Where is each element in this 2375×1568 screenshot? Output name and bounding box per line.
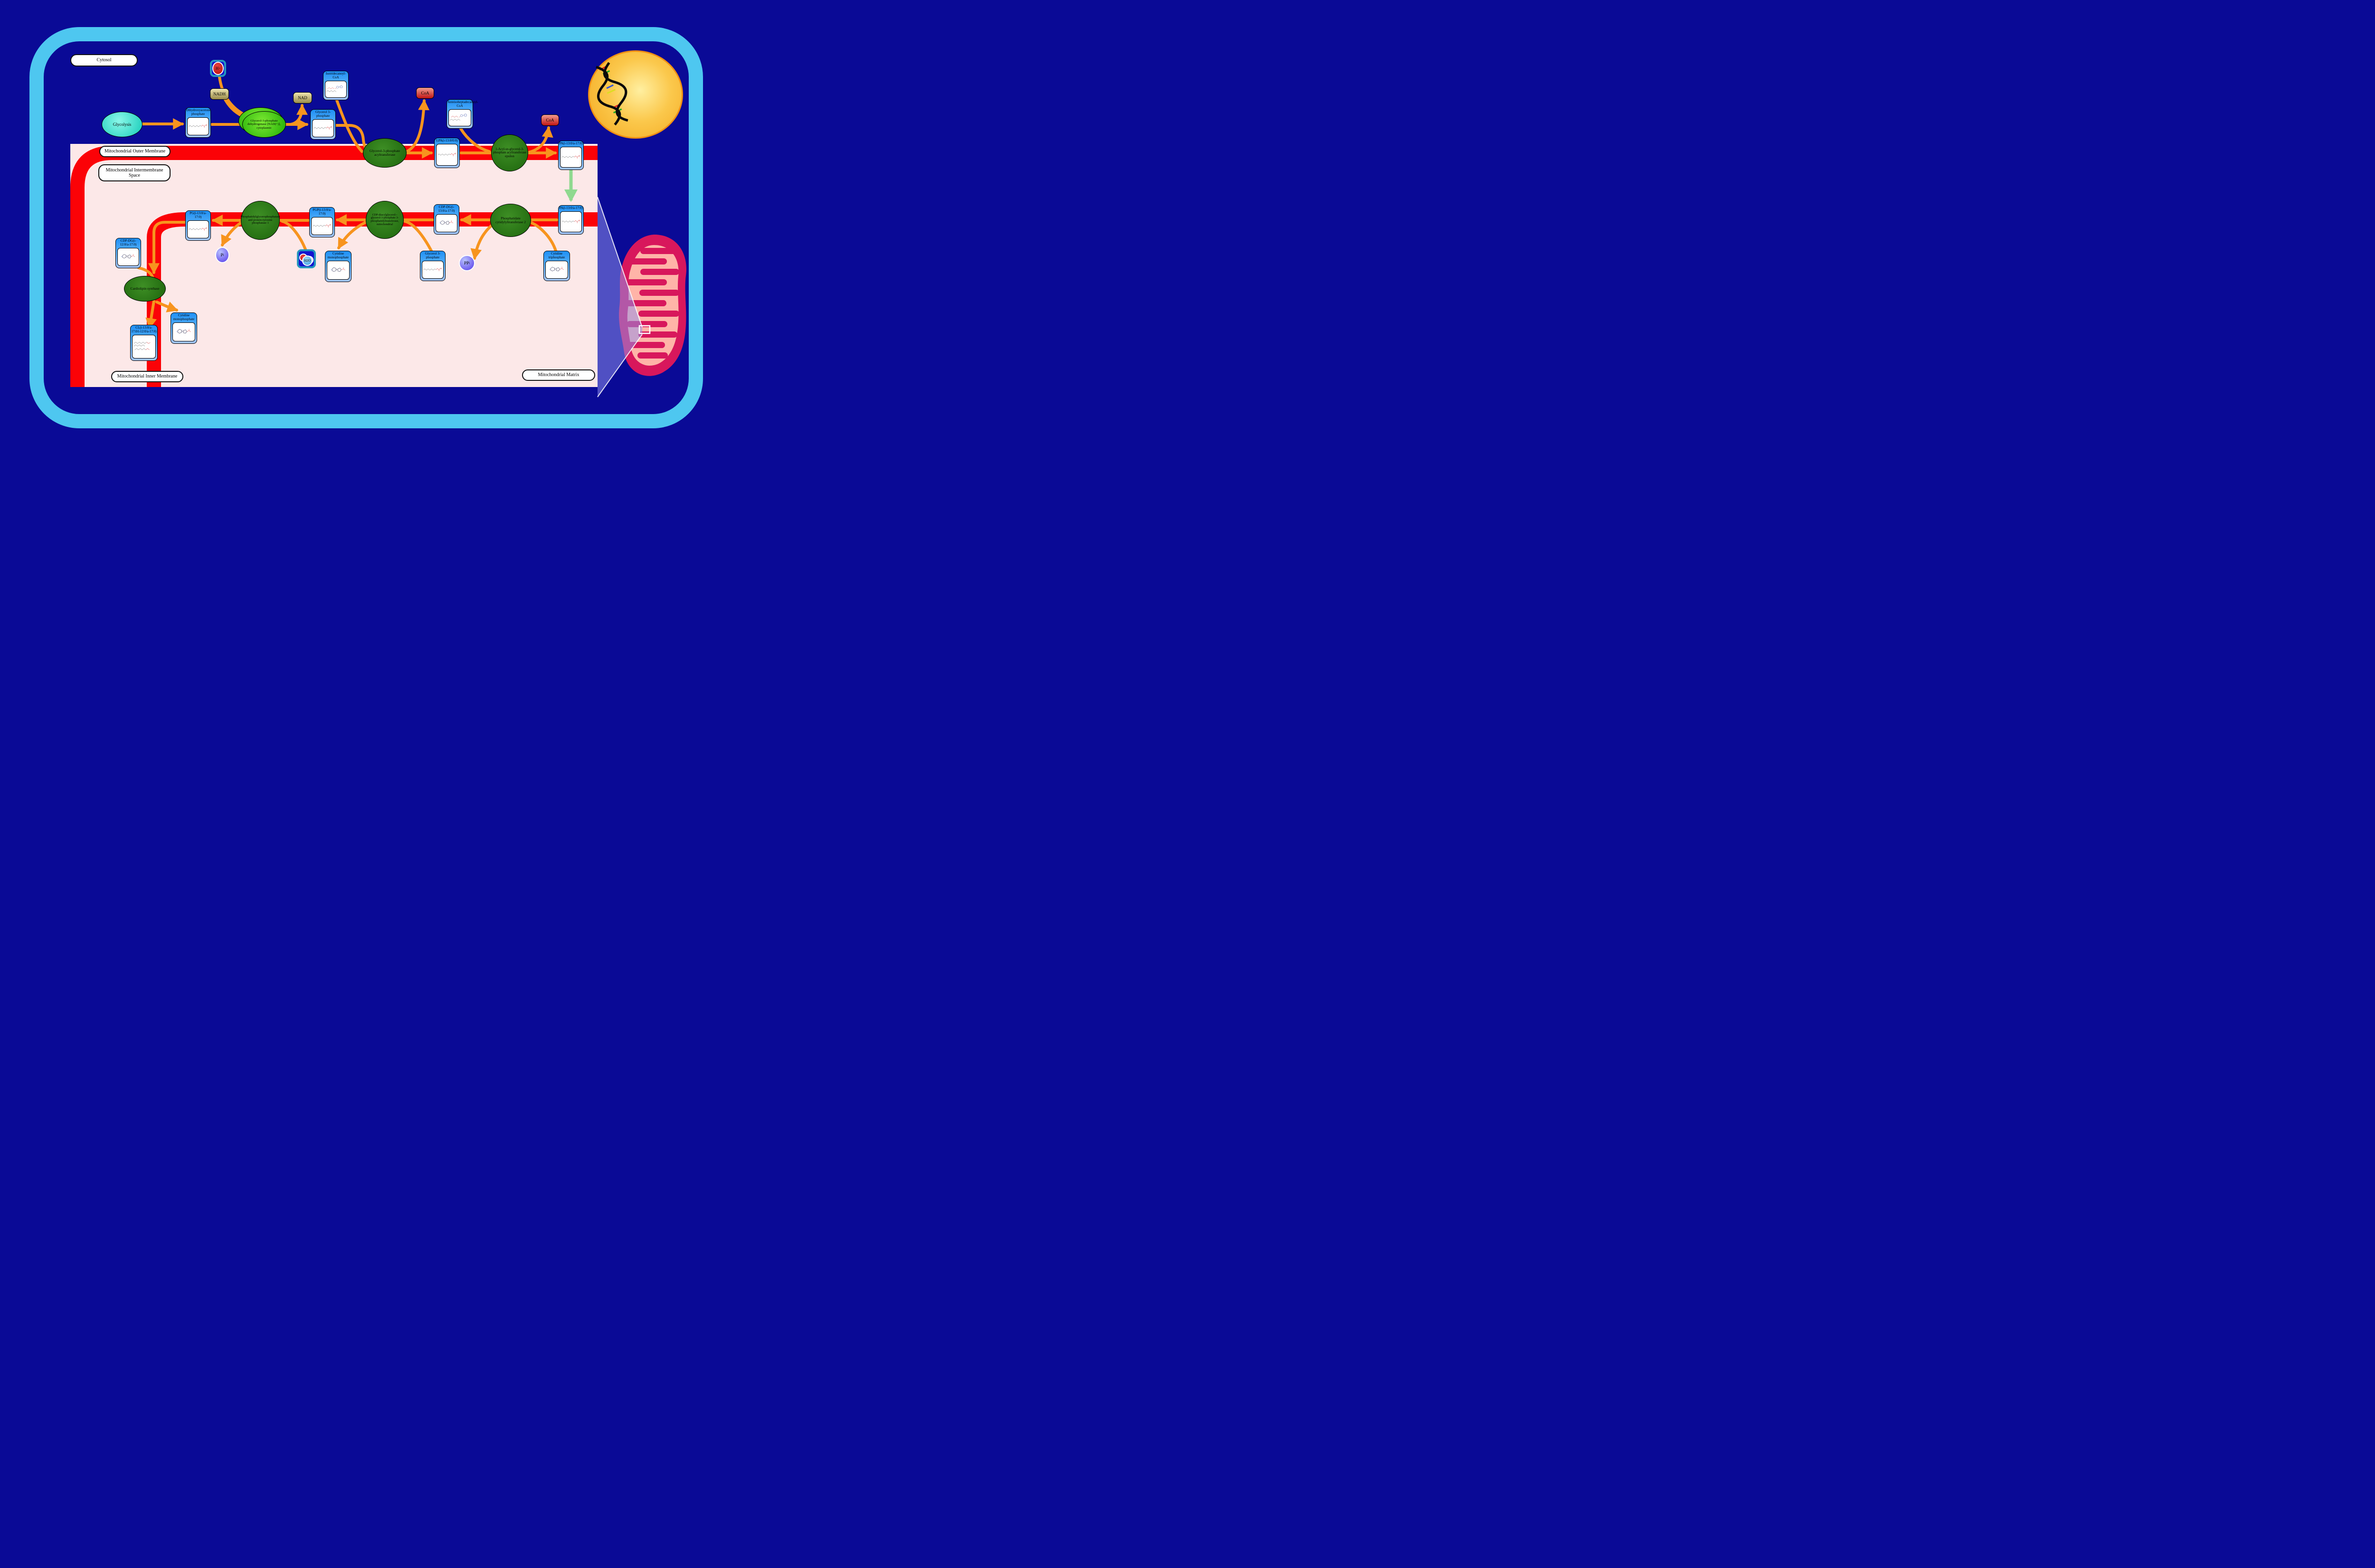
structure-icon bbox=[133, 340, 155, 354]
metabolite-name: Anteisoheptadecanoyl-CoA bbox=[447, 100, 473, 109]
structure-icon bbox=[422, 264, 443, 275]
region-label-intermembrane-space: Mitochondrial Intermembrane Space bbox=[98, 164, 171, 181]
region-label-text: Cytosol bbox=[96, 57, 111, 63]
enzyme-g3p-dehydrogenase[interactable]: Glycerol-3-phosphate dehydrogenase [NAD(… bbox=[242, 111, 286, 138]
enzyme-cdp-dg-g3p-phosphatidyltransferase[interactable]: CDP-diacylglycerol--glycerol-3-phosphate… bbox=[366, 201, 404, 239]
cofactor-label: CoA bbox=[421, 91, 429, 95]
metabolite-name: Cytidine monophosphate bbox=[325, 251, 351, 260]
cofactor-label-sup: + bbox=[218, 66, 220, 70]
hydrogen-atom-icon: H2O bbox=[302, 255, 313, 266]
metabolite-name: LPA(i-13:0/0:0) bbox=[435, 138, 459, 143]
h2o-molecule: H2O bbox=[299, 252, 313, 266]
metabolite-name: CDP-DG(i-13:0/a-17:0) bbox=[434, 205, 459, 214]
enzyme-g3p-acyltransferase[interactable]: Glycerol-3-phosphate acyltransferase bbox=[363, 138, 407, 168]
metabolite-isotridecanoyl-coa[interactable]: Isotridecanoyl-CoA bbox=[323, 71, 349, 100]
cofactor-pi[interactable]: Pi bbox=[215, 247, 229, 263]
metabolite-lpa[interactable]: LPA(i-13:0/0:0) bbox=[434, 138, 460, 168]
pathway-canvas: Cytosol Mitochondrial Outer Membrane Mit… bbox=[0, 0, 745, 455]
inner-membrane-band bbox=[154, 219, 598, 387]
enzyme-name: Cardiolipin synthase bbox=[131, 287, 160, 291]
metabolite-name: Isotridecanoyl-CoA bbox=[323, 71, 348, 80]
structure-icon bbox=[173, 326, 195, 338]
enzyme-cardiolipin-synthase[interactable]: Cardiolipin synthase bbox=[124, 276, 166, 302]
enzyme-name: Glycerol-3-phosphate acyltransferase bbox=[365, 149, 405, 157]
structure-icon bbox=[325, 84, 346, 95]
metabolite-name: PA(i-13:0/a-17:0) bbox=[559, 206, 583, 211]
structure-icon bbox=[437, 150, 457, 160]
metabolite-pa-outer[interactable]: PA(i-13:0/a-17:0) bbox=[558, 141, 584, 170]
region-label-matrix: Mitochondrial Matrix bbox=[522, 369, 595, 381]
region-label-text: Mitochondrial Matrix bbox=[538, 372, 579, 378]
region-label-text: Mitochondrial Inner Membrane bbox=[117, 374, 178, 379]
structure-icon bbox=[188, 224, 209, 235]
enzyme-pgp-phosphatase[interactable]: Phosphatidylglycerophosphatase and prote… bbox=[241, 201, 280, 240]
metabolite-cmp-middle[interactable]: Cytidine monophosphate bbox=[325, 251, 351, 282]
pathway-node-glycolysis[interactable]: Glycolysis bbox=[102, 112, 142, 137]
cofactor-label: CoA bbox=[546, 118, 554, 123]
metabolite-name: Cytidine monophosphate bbox=[171, 313, 197, 322]
metabolite-name: Cytidine triphosphate bbox=[544, 251, 570, 260]
enzyme-name: Phosphatidylglycerophosphatase and prote… bbox=[241, 216, 280, 226]
structure-icon bbox=[327, 264, 349, 276]
region-label-outer-membrane: Mitochondrial Outer Membrane bbox=[99, 146, 171, 157]
metabolite-name: PG(i-13:0/a-17:0) bbox=[186, 211, 210, 220]
enzyme-name: Phosphatidate cytidylyltransferase 2 bbox=[492, 217, 529, 224]
enzyme-agpat-epsilon[interactable]: 1-Acyl-sn-glycerol-3-phosphate acyltrans… bbox=[491, 134, 528, 171]
cofactor-label-sub: i bbox=[469, 261, 470, 265]
h-plus-core: H+ bbox=[212, 62, 224, 75]
structure-icon bbox=[312, 221, 332, 231]
metabolite-cdp-dg-12[interactable]: CDP-DG(i-12:0/a-17:0) bbox=[115, 238, 141, 268]
structure-icon bbox=[436, 218, 457, 228]
metabolite-cl[interactable]: CL(i-13:0/a-17:0/i-12:0/a-17:0) bbox=[130, 325, 158, 361]
region-label-cytosol: Cytosol bbox=[70, 54, 138, 66]
enzyme-phosphatidate-cytidylyltransferase[interactable]: Phosphatidate cytidylyltransferase 2 bbox=[490, 204, 531, 237]
cofactor-label: NADH bbox=[213, 92, 226, 96]
region-label-text: Mitochondrial Outer Membrane bbox=[104, 149, 165, 154]
structure-icon bbox=[449, 112, 471, 123]
enzyme-name: Glycerol-3-phosphate dehydrogenase [NAD(… bbox=[244, 119, 284, 130]
structure-icon bbox=[560, 217, 581, 227]
region-label-inner-membrane: Mitochondrial Inner Membrane bbox=[111, 371, 183, 382]
structure-icon bbox=[188, 121, 209, 132]
h-plus-icon[interactable]: H+ bbox=[210, 60, 226, 77]
metabolite-name: PGP(i-13:0/a-17:0) bbox=[310, 208, 334, 217]
region-label-text: Mitochondrial Intermembrane Space bbox=[101, 168, 168, 179]
metabolite-cmp-left[interactable]: Cytidine monophosphate bbox=[171, 312, 197, 344]
structure-icon bbox=[118, 252, 139, 262]
metabolite-pgp[interactable]: PGP(i-13:0/a-17:0) bbox=[309, 207, 335, 237]
cofactor-ppi[interactable]: PPi bbox=[459, 255, 475, 271]
metabolite-name: CL(i-13:0/a-17:0/i-12:0/a-17:0) bbox=[131, 325, 157, 334]
metabolite-name: CDP-DG(i-12:0/a-17:0) bbox=[116, 238, 141, 247]
metabolite-ctp[interactable]: Cytidine triphosphate bbox=[543, 251, 570, 281]
cofactor-nadh[interactable]: NADH bbox=[210, 88, 229, 100]
metabolite-g3p-matrix[interactable]: Glycerol 3-phosphate bbox=[420, 251, 446, 281]
metabolite-name: PA(i-13:0/a-17:0) bbox=[559, 141, 583, 146]
cofactor-label: PP bbox=[464, 261, 469, 265]
structure-icon bbox=[313, 123, 333, 133]
h2o-icon[interactable]: H2O bbox=[297, 249, 316, 268]
metabolite-dhap[interactable]: Dihydroxyacetone phosphate bbox=[185, 107, 211, 138]
cofactor-label-sub: i bbox=[223, 253, 224, 257]
metabolite-anteisoheptadecanoyl-coa[interactable]: Anteisoheptadecanoyl-CoA bbox=[446, 99, 473, 129]
metabolite-name: Glycerol 3-phosphate bbox=[311, 110, 335, 119]
nucleus bbox=[588, 50, 683, 139]
cofactor-coa-1[interactable]: CoA bbox=[416, 87, 434, 99]
structure-icon bbox=[560, 152, 581, 162]
metabolite-name: Dihydroxyacetone phosphate bbox=[186, 108, 210, 117]
metabolite-pg[interactable]: PG(i-13:0/a-17:0) bbox=[185, 210, 211, 241]
cofactor-coa-2[interactable]: CoA bbox=[541, 114, 559, 126]
metabolite-pa-inner[interactable]: PA(i-13:0/a-17:0) bbox=[558, 205, 584, 235]
metabolite-cdp-dg-13[interactable]: CDP-DG(i-13:0/a-17:0) bbox=[434, 204, 459, 235]
cofactor-label: O bbox=[308, 259, 311, 263]
cofactor-nad[interactable]: NAD bbox=[293, 92, 312, 104]
metabolite-name: Glycerol 3-phosphate bbox=[420, 251, 445, 260]
metabolite-g3p-cytosol[interactable]: Glycerol 3-phosphate bbox=[310, 109, 336, 140]
structure-icon bbox=[546, 264, 568, 275]
cofactor-label: NAD bbox=[298, 95, 307, 100]
mitochondrion bbox=[614, 232, 693, 380]
pathway-node-label: Glycolysis bbox=[113, 122, 132, 127]
enzyme-name: CDP-diacylglycerol--glycerol-3-phosphate… bbox=[368, 214, 402, 227]
enzyme-name: 1-Acyl-sn-glycerol-3-phosphate acyltrans… bbox=[493, 148, 526, 158]
